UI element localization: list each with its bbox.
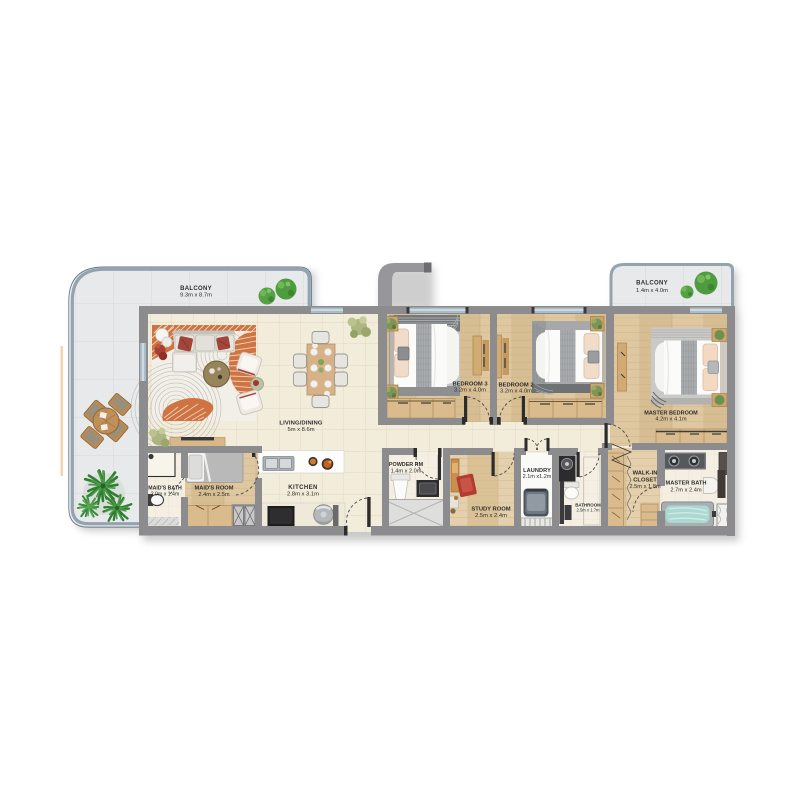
svg-text:2.1m x1.2m: 2.1m x1.2m bbox=[523, 474, 552, 480]
svg-text:1.4m x 2.0m: 1.4m x 2.0m bbox=[391, 469, 422, 475]
svg-text:POWDER RM: POWDER RM bbox=[389, 462, 424, 468]
svg-text:BALCONY: BALCONY bbox=[636, 281, 668, 287]
svg-text:4.2m x 4.1m: 4.2m x 4.1m bbox=[655, 417, 687, 423]
svg-text:3.2m x 4.0m: 3.2m x 4.0m bbox=[454, 388, 486, 394]
svg-text:BALCONY: BALCONY bbox=[180, 286, 212, 292]
svg-text:2.5m x 1.7m: 2.5m x 1.7m bbox=[576, 508, 600, 513]
svg-text:KITCHEN: KITCHEN bbox=[288, 485, 317, 491]
svg-text:9.3m x 8.7m: 9.3m x 8.7m bbox=[180, 293, 212, 299]
svg-text:2.5m x 1.8m: 2.5m x 1.8m bbox=[629, 484, 661, 490]
svg-text:3.2m x 4.0m: 3.2m x 4.0m bbox=[500, 389, 532, 395]
svg-text:2.4m x 2.5m: 2.4m x 2.5m bbox=[198, 492, 230, 498]
svg-text:MASTER BATH: MASTER BATH bbox=[666, 481, 707, 487]
svg-text:2.8m x 3.1m: 2.8m x 3.1m bbox=[287, 492, 319, 498]
svg-text:5m x 8.6m: 5m x 8.6m bbox=[287, 427, 314, 433]
svg-text:CLOSET: CLOSET bbox=[633, 478, 657, 484]
svg-text:LIVING/DINING: LIVING/DINING bbox=[279, 421, 323, 427]
svg-text:STUDY ROOM: STUDY ROOM bbox=[471, 507, 510, 513]
svg-text:2.5m x 2.4m: 2.5m x 2.4m bbox=[475, 513, 507, 519]
svg-text:2.0m x 1.4m: 2.0m x 1.4m bbox=[151, 492, 180, 498]
svg-text:1.4m x 4.0m: 1.4m x 4.0m bbox=[636, 288, 668, 294]
svg-text:WALK-IN: WALK-IN bbox=[633, 471, 658, 477]
svg-text:2.7m x 2.4m: 2.7m x 2.4m bbox=[670, 488, 702, 494]
svg-text:MAID'S ROOM: MAID'S ROOM bbox=[195, 486, 234, 492]
